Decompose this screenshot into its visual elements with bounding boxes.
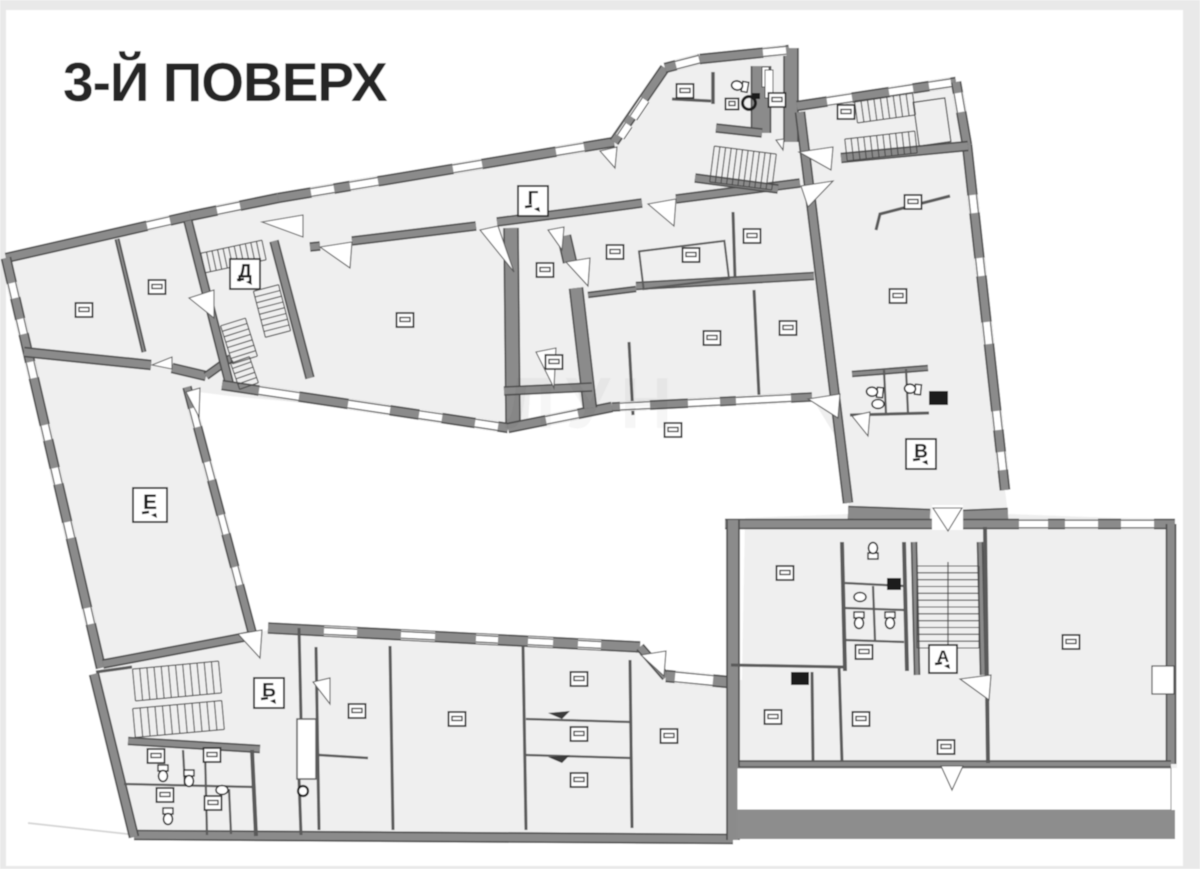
svg-text:ЛУН: ЛУН <box>505 364 682 444</box>
svg-text:Е: Е <box>143 491 157 514</box>
svg-text:3-Й ПОВЕРХ: 3-Й ПОВЕРХ <box>63 50 388 113</box>
